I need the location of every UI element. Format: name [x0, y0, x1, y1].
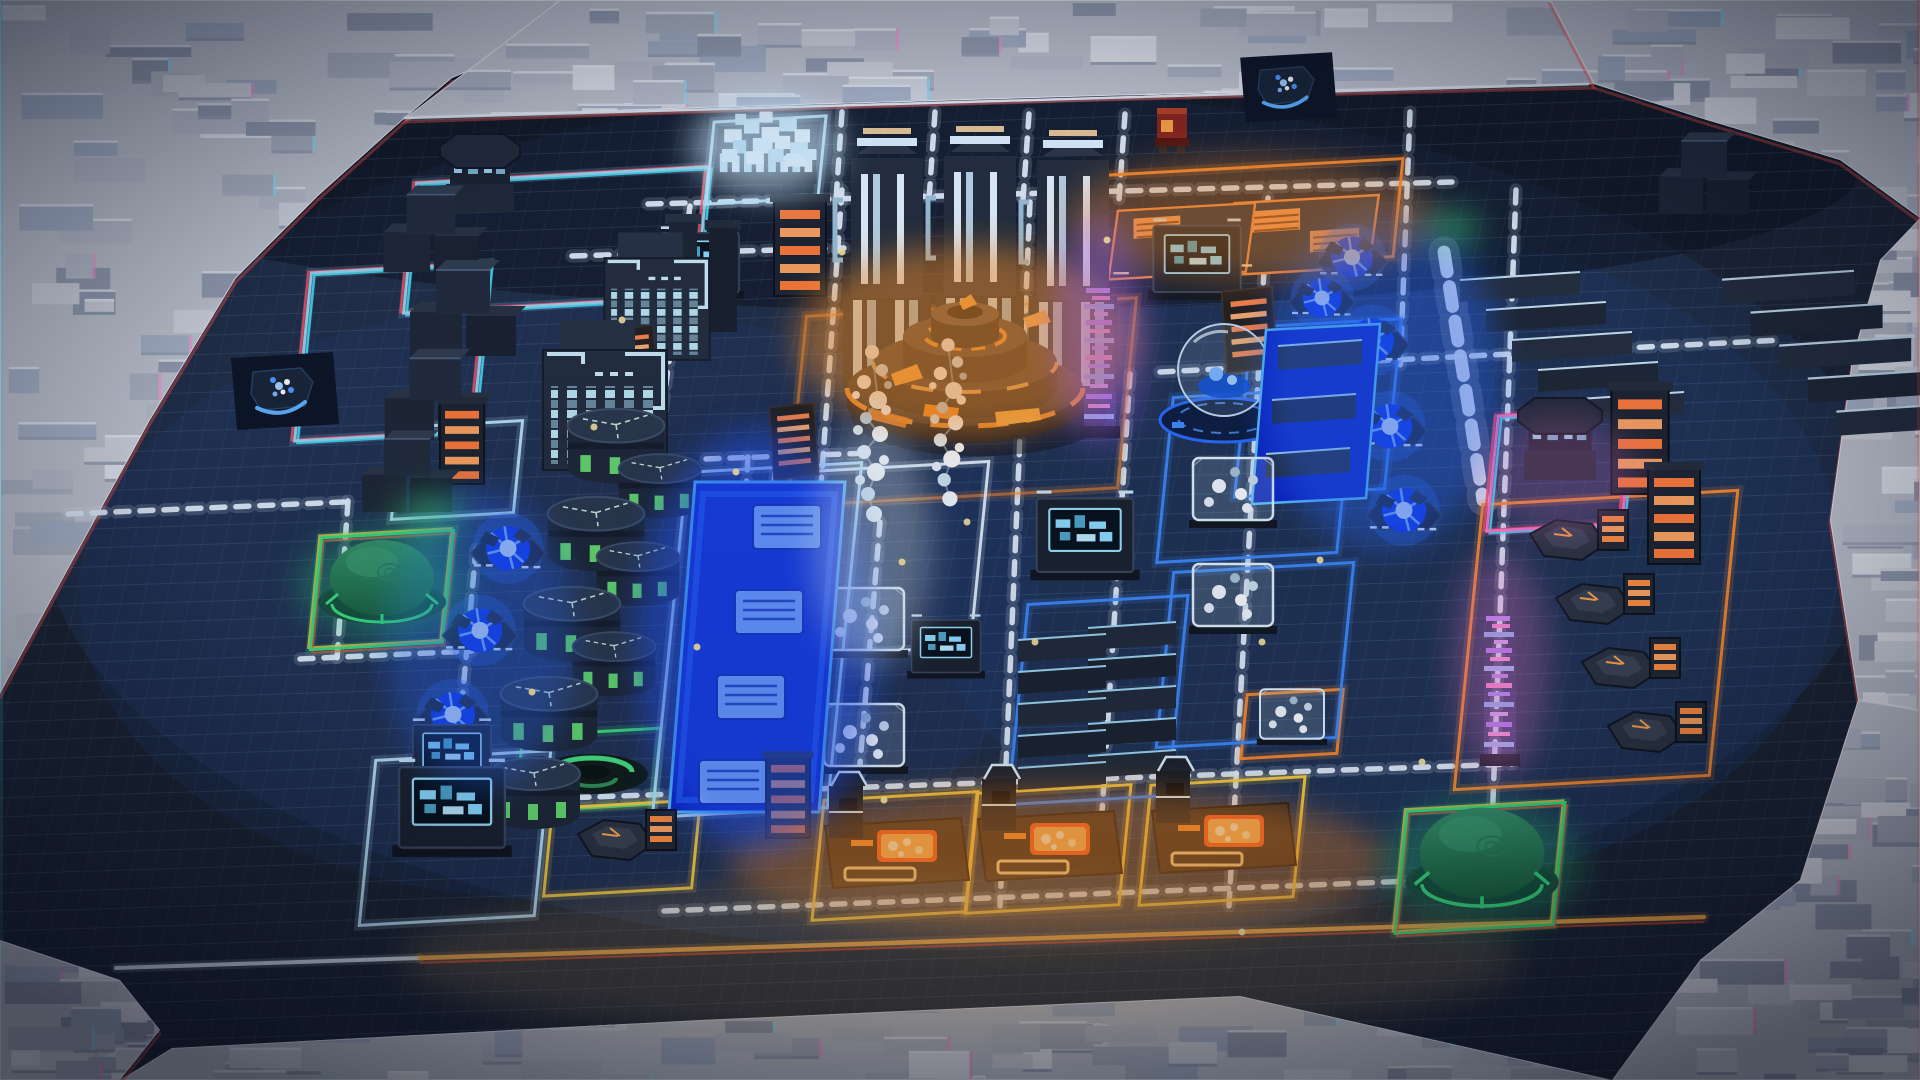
spark-dot: [1317, 557, 1324, 564]
bloom-glow: [1480, 415, 1640, 535]
game-screen: [0, 0, 1920, 1080]
spark-dot: [1259, 639, 1266, 646]
spark-dot: [839, 249, 846, 256]
building-screenbox[interactable]: [907, 616, 985, 679]
bloom-glow: [395, 495, 463, 539]
building-rack[interactable]: [1644, 462, 1704, 564]
spark-dot: [899, 559, 906, 566]
bloom-glow: [1382, 800, 1582, 930]
bloom-glow: [1055, 215, 1145, 445]
building-emblem[interactable]: [231, 352, 339, 430]
spark-dot: [964, 519, 971, 526]
building-screenbox[interactable]: [1030, 492, 1139, 580]
spark-dot: [619, 317, 626, 324]
spark-dot: [1032, 639, 1039, 646]
spark-dot: [1104, 237, 1111, 244]
building-rack[interactable]: [770, 194, 830, 296]
bloom-glow: [691, 95, 841, 195]
building-glasscube[interactable]: [1257, 689, 1327, 745]
spark-dot: [733, 469, 740, 476]
building-emblem[interactable]: [1240, 52, 1337, 122]
spark-dot: [1419, 759, 1426, 766]
spark-dot: [529, 689, 536, 696]
spark-dot: [1239, 929, 1246, 936]
bloom-glow: [400, 880, 1520, 1040]
spark-dot: [591, 424, 598, 431]
bloom-glow: [1452, 550, 1548, 780]
spark-dot: [881, 797, 888, 804]
building-glasscube[interactable]: [1189, 458, 1277, 528]
building-glasscube[interactable]: [1189, 564, 1277, 634]
bloom-glow: [812, 425, 932, 665]
game-viewport[interactable]: [0, 0, 1920, 1080]
spark-dot: [694, 644, 701, 651]
bloom-glow: [1425, 210, 1481, 246]
bloom-glow: [297, 530, 467, 640]
